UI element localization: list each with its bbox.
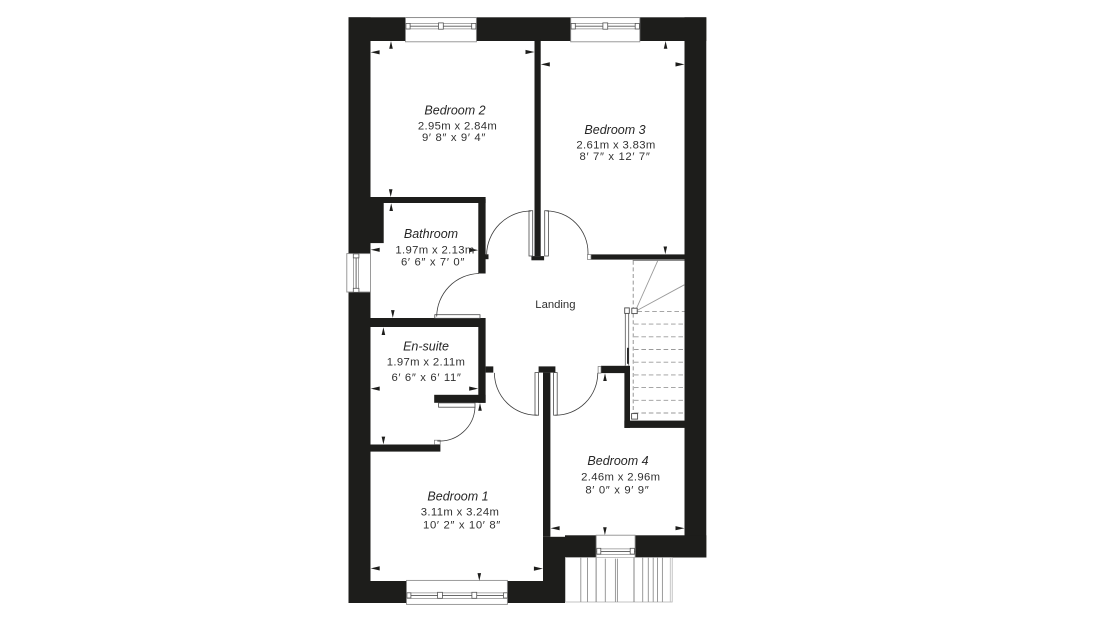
svg-text:8′ 7″ x 12′ 7″: 8′ 7″ x 12′ 7″: [580, 151, 651, 163]
svg-text:1.97m x 2.13m: 1.97m x 2.13m: [395, 245, 474, 257]
svg-text:Bedroom 2: Bedroom 2: [424, 104, 485, 118]
svg-text:3.11m x 3.24m: 3.11m x 3.24m: [421, 507, 499, 519]
svg-text:Bedroom 3: Bedroom 3: [584, 123, 645, 137]
svg-text:2.61m x 3.83m: 2.61m x 3.83m: [576, 140, 655, 152]
svg-text:2.95m x 2.84m: 2.95m x 2.84m: [418, 121, 497, 133]
svg-text:9′ 8″ x 9′ 4″: 9′ 8″ x 9′ 4″: [422, 132, 486, 144]
svg-text:Bedroom 1: Bedroom 1: [427, 490, 488, 504]
svg-text:8′ 0″ x 9′ 9″: 8′ 0″ x 9′ 9″: [585, 484, 649, 496]
svg-text:10′ 2″ x 10′ 8″: 10′ 2″ x 10′ 8″: [423, 520, 501, 532]
svg-text:1.97m x 2.11m: 1.97m x 2.11m: [387, 357, 465, 369]
svg-text:6′ 6″ x 7′ 0″: 6′ 6″ x 7′ 0″: [401, 256, 465, 268]
svg-text:Bedroom 4: Bedroom 4: [587, 454, 648, 468]
svg-text:Landing: Landing: [535, 299, 575, 311]
svg-text:2.46m x 2.96m: 2.46m x 2.96m: [581, 471, 660, 483]
svg-text:6′ 6″ x 6′ 11″: 6′ 6″ x 6′ 11″: [391, 372, 461, 384]
svg-text:Bathroom: Bathroom: [404, 227, 458, 241]
svg-text:En-suite: En-suite: [403, 340, 449, 354]
